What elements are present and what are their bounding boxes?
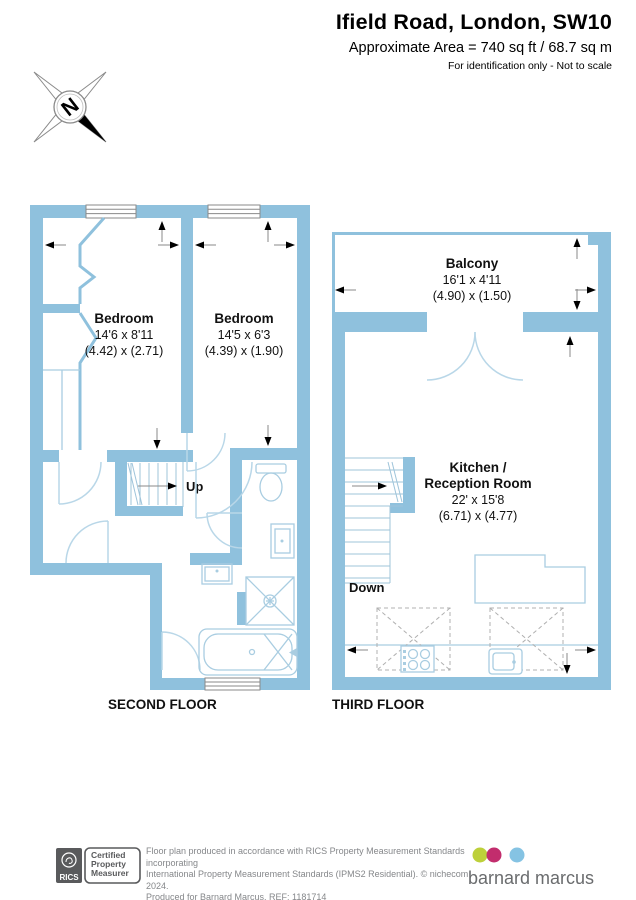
rics-wordmark: RICS bbox=[59, 873, 79, 882]
disclaimer-line2: International Property Measurement Stand… bbox=[146, 869, 481, 892]
room-dims-metric: (4.42) x (2.71) bbox=[85, 344, 164, 358]
room-dims-metric: (4.90) x (1.50) bbox=[433, 289, 512, 303]
toilet-icon bbox=[256, 464, 286, 501]
room-dims-metric: (4.39) x (1.90) bbox=[205, 344, 284, 358]
room-name: Balcony bbox=[446, 256, 499, 271]
disclaimer-line1: Floor plan produced in accordance with R… bbox=[146, 846, 481, 869]
window bbox=[205, 678, 260, 690]
sink-icon bbox=[271, 524, 294, 558]
room-dims-imperial: 14'6 x 8'11 bbox=[95, 328, 154, 342]
logo-dot-magenta bbox=[487, 848, 502, 863]
agency-wordmark: barnard marcus bbox=[468, 868, 594, 888]
stairs-down-label: Down bbox=[349, 580, 384, 595]
room-name: Bedroom bbox=[94, 311, 153, 326]
bathtub-icon bbox=[199, 629, 297, 675]
room-name: Bedroom bbox=[214, 311, 273, 326]
badge-line3: Measurer bbox=[91, 868, 129, 878]
stairs-up: Up bbox=[128, 462, 203, 507]
kitchen-sink-icon bbox=[489, 649, 522, 674]
floorplan-drawing: N bbox=[0, 0, 636, 900]
room-dims-imperial: 22' x 15'8 bbox=[452, 493, 505, 507]
stairs-up-label: Up bbox=[186, 479, 203, 494]
room-dims-imperial: 16'1 x 4'11 bbox=[443, 273, 502, 287]
room-name-line1: Kitchen / bbox=[449, 460, 506, 475]
room-label-balcony: Balcony 16'1 x 4'11 (4.90) x (1.50) bbox=[433, 256, 512, 303]
second-floor-walls bbox=[30, 205, 310, 690]
room-dims-metric: (6.71) x (4.77) bbox=[439, 509, 518, 523]
french-door-arcs bbox=[427, 332, 523, 380]
third-floor-plan: Down bbox=[332, 232, 611, 712]
second-floor-plan: Up bbox=[30, 205, 310, 712]
window bbox=[86, 205, 136, 218]
hob-icon bbox=[401, 646, 434, 672]
window bbox=[208, 205, 260, 218]
room-label-bedroom2: Bedroom 14'5 x 6'3 (4.39) x (1.90) bbox=[205, 311, 284, 358]
room-label-bedroom1: Bedroom 14'6 x 8'11 (4.42) x (2.71) bbox=[85, 311, 164, 358]
room-label-kitchen-reception: Kitchen / Reception Room 22' x 15'8 (6.7… bbox=[424, 460, 531, 523]
rics-logo: RICS bbox=[56, 848, 82, 883]
floorplan-page: Ifield Road, London, SW10 Approximate Ar… bbox=[0, 0, 636, 900]
third-floor-label: THIRD FLOOR bbox=[332, 697, 424, 712]
disclaimer-line3: Produced for Barnard Marcus. REF: 118171… bbox=[146, 892, 481, 900]
footer-disclaimer: Floor plan produced in accordance with R… bbox=[146, 846, 481, 900]
room-dims-imperial: 14'5 x 6'3 bbox=[218, 328, 271, 342]
roof-step-outline bbox=[475, 555, 585, 603]
room-name-line2: Reception Room bbox=[424, 476, 531, 491]
certified-property-measurer-badge: Certified Property Measurer bbox=[85, 848, 140, 883]
stairs-down: Down bbox=[345, 458, 403, 595]
basin-icon bbox=[202, 564, 232, 584]
shower-icon bbox=[246, 577, 294, 625]
second-floor-label: SECOND FLOOR bbox=[108, 697, 217, 712]
closet-outline bbox=[43, 370, 80, 450]
north-arrow-compass: N bbox=[34, 72, 106, 142]
kitchen-counter bbox=[345, 608, 598, 674]
barnard-marcus-logo: barnard marcus bbox=[468, 848, 594, 889]
logo-dot-blue bbox=[510, 848, 525, 863]
